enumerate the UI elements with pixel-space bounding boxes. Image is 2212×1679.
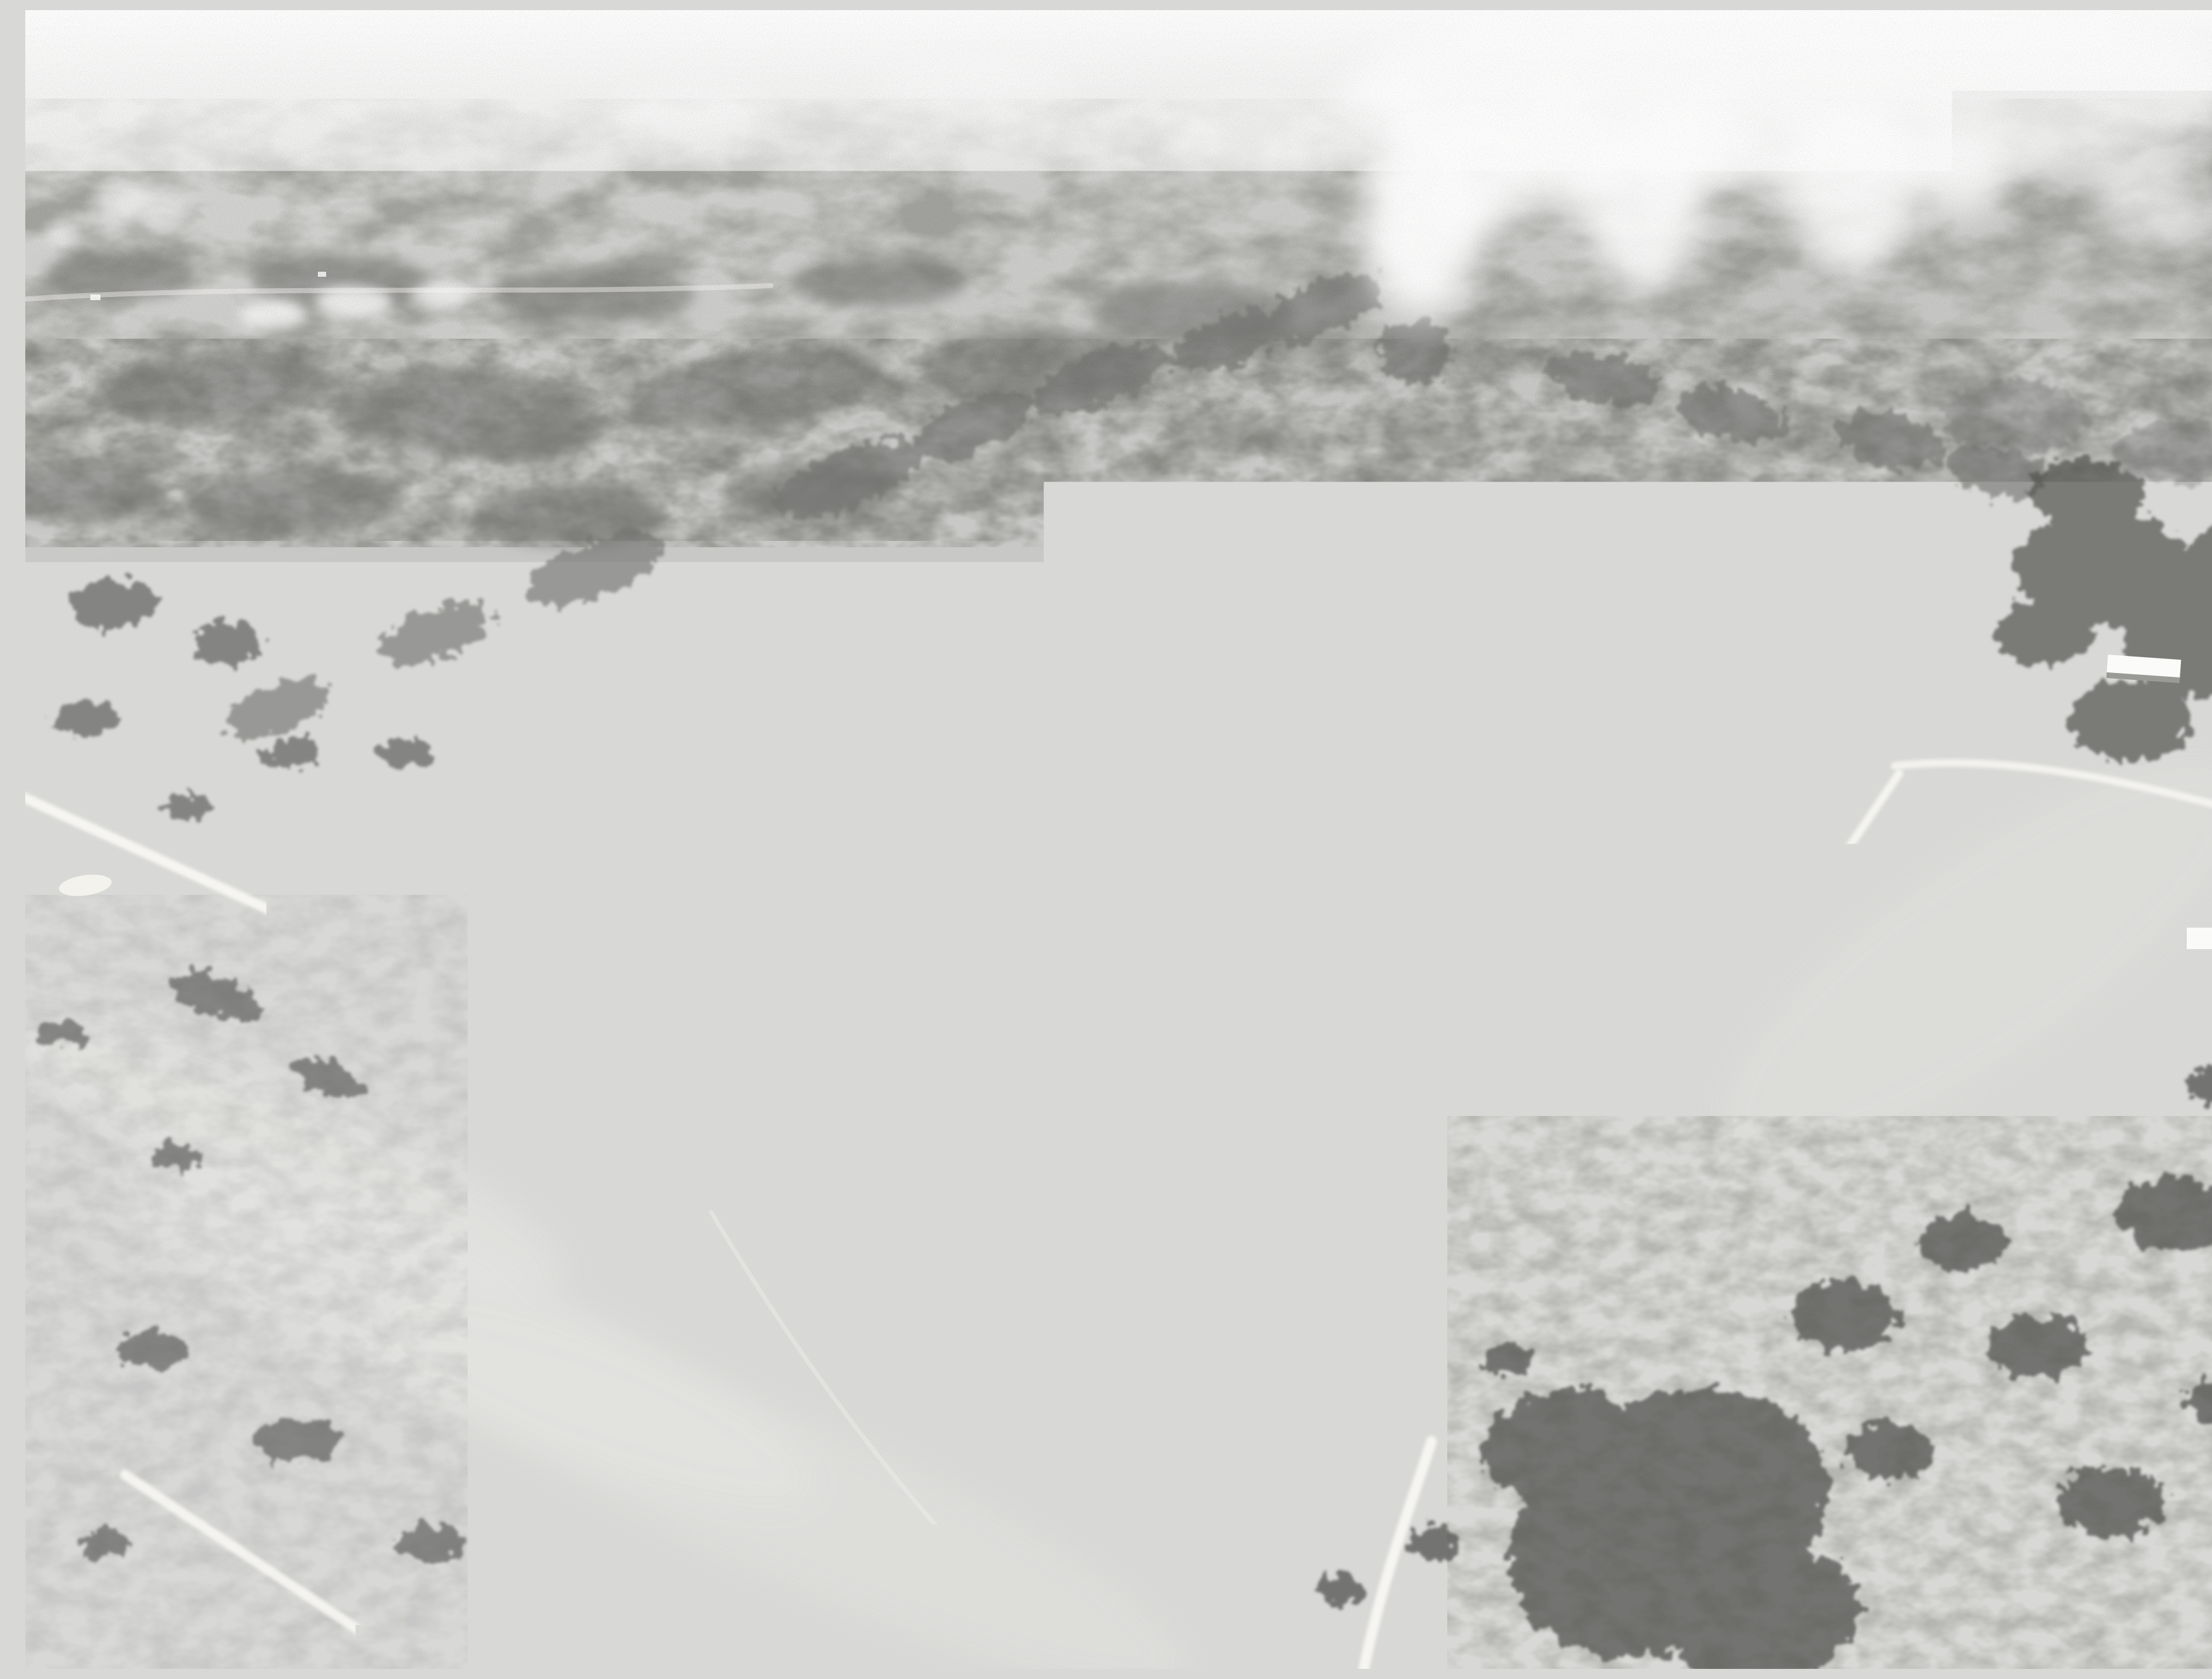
- aerial-scene: BOUNDARIES ARE APPROXIMATE: [25, 10, 2212, 1669]
- aerial-property-photo: BOUNDARIES ARE APPROXIMATE: [25, 10, 2212, 1669]
- film-grain: [25, 10, 2212, 1669]
